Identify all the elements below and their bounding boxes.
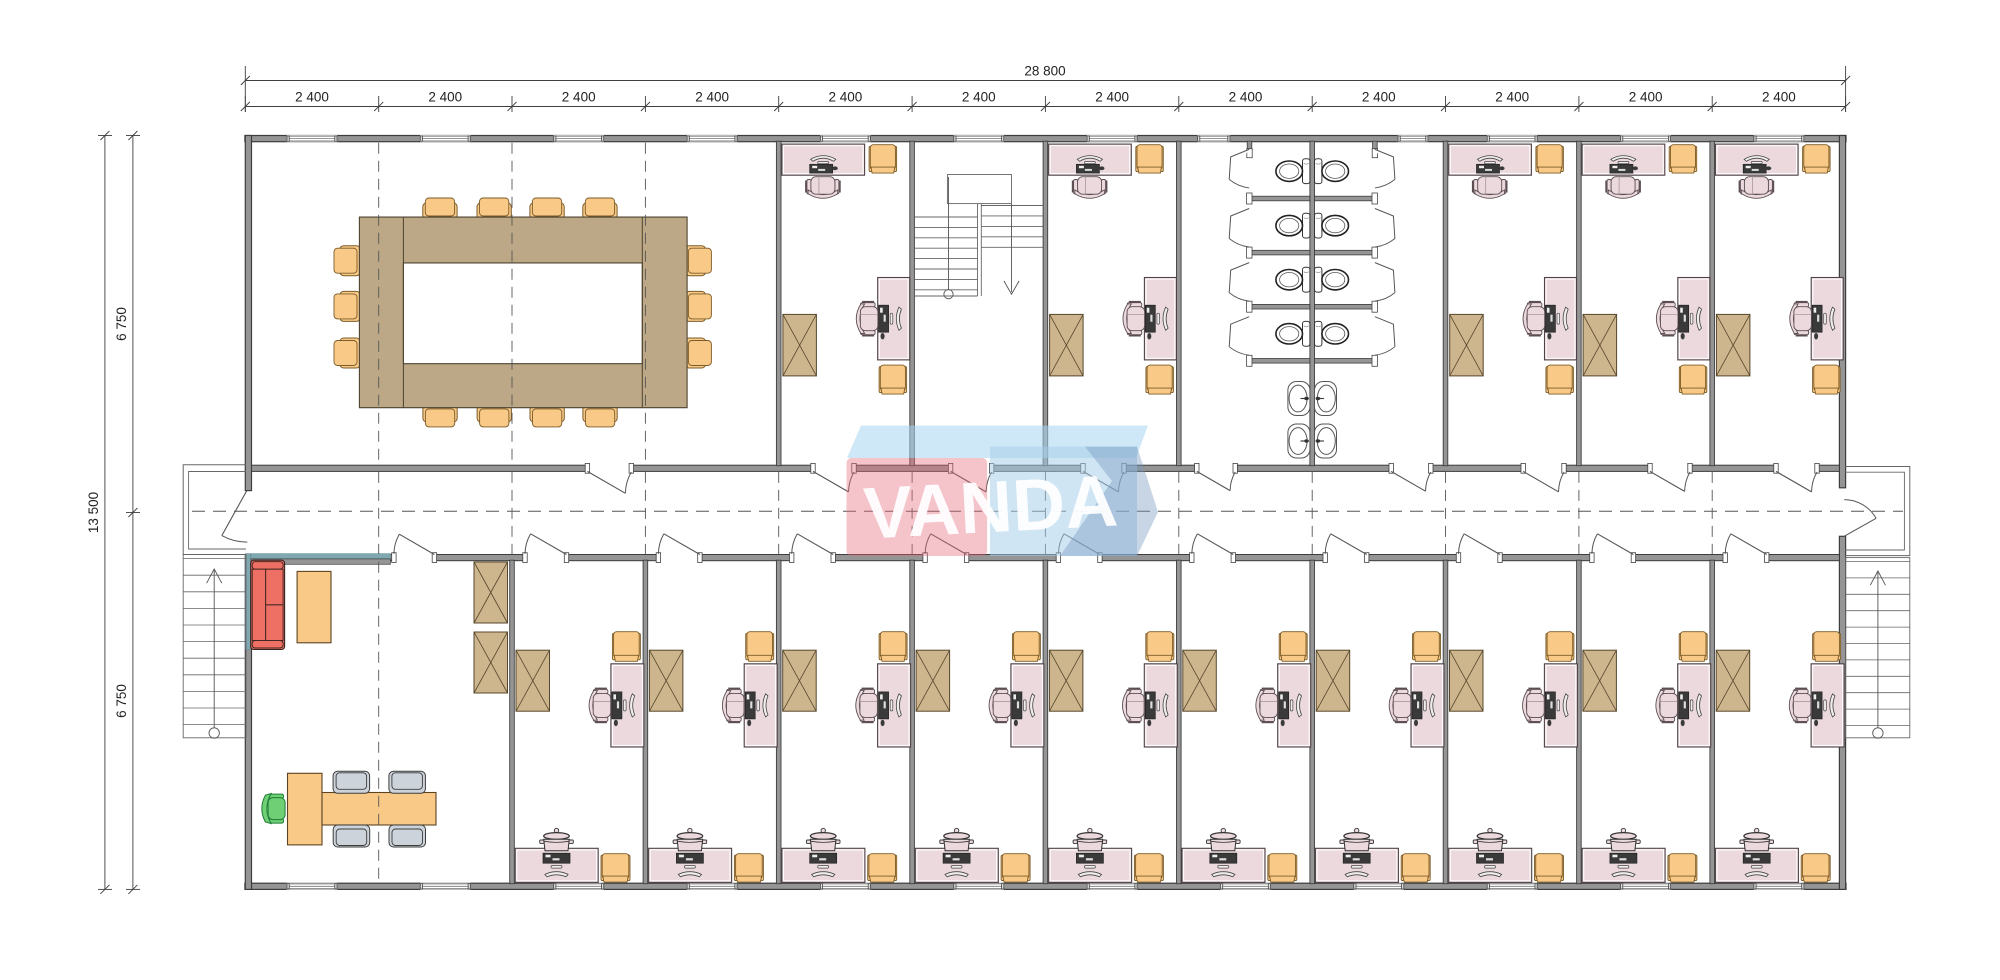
svg-text:28 800: 28 800 bbox=[1024, 64, 1065, 79]
svg-text:2 400: 2 400 bbox=[1762, 90, 1796, 105]
svg-text:VANDA: VANDA bbox=[862, 460, 1120, 554]
svg-text:2 400: 2 400 bbox=[1095, 90, 1129, 105]
svg-text:6 750: 6 750 bbox=[114, 684, 129, 718]
svg-text:2 400: 2 400 bbox=[1362, 90, 1396, 105]
svg-text:6 750: 6 750 bbox=[114, 307, 129, 341]
svg-text:2 400: 2 400 bbox=[1229, 90, 1263, 105]
svg-text:2 400: 2 400 bbox=[1495, 90, 1529, 105]
svg-text:2 400: 2 400 bbox=[295, 90, 329, 105]
svg-text:2 400: 2 400 bbox=[1629, 90, 1663, 105]
svg-text:2 400: 2 400 bbox=[428, 90, 462, 105]
svg-text:2 400: 2 400 bbox=[695, 90, 729, 105]
svg-text:2 400: 2 400 bbox=[562, 90, 596, 105]
svg-text:2 400: 2 400 bbox=[829, 90, 863, 105]
svg-text:2 400: 2 400 bbox=[962, 90, 996, 105]
svg-text:13 500: 13 500 bbox=[86, 492, 101, 533]
